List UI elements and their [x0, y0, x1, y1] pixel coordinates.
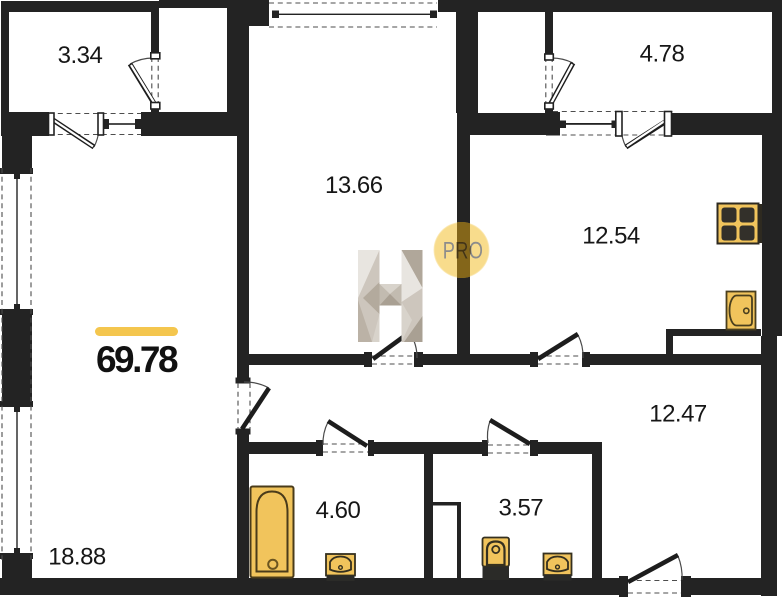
svg-text:3.57: 3.57: [498, 494, 543, 521]
svg-text:3.34: 3.34: [58, 42, 103, 69]
svg-text:13.66: 13.66: [325, 172, 383, 199]
svg-text:4.78: 4.78: [640, 40, 685, 67]
svg-text:12.47: 12.47: [649, 400, 707, 427]
svg-text:69.78: 69.78: [96, 339, 178, 380]
svg-text:12.54: 12.54: [582, 222, 640, 249]
svg-text:18.88: 18.88: [48, 543, 106, 570]
svg-text:4.60: 4.60: [316, 497, 361, 524]
